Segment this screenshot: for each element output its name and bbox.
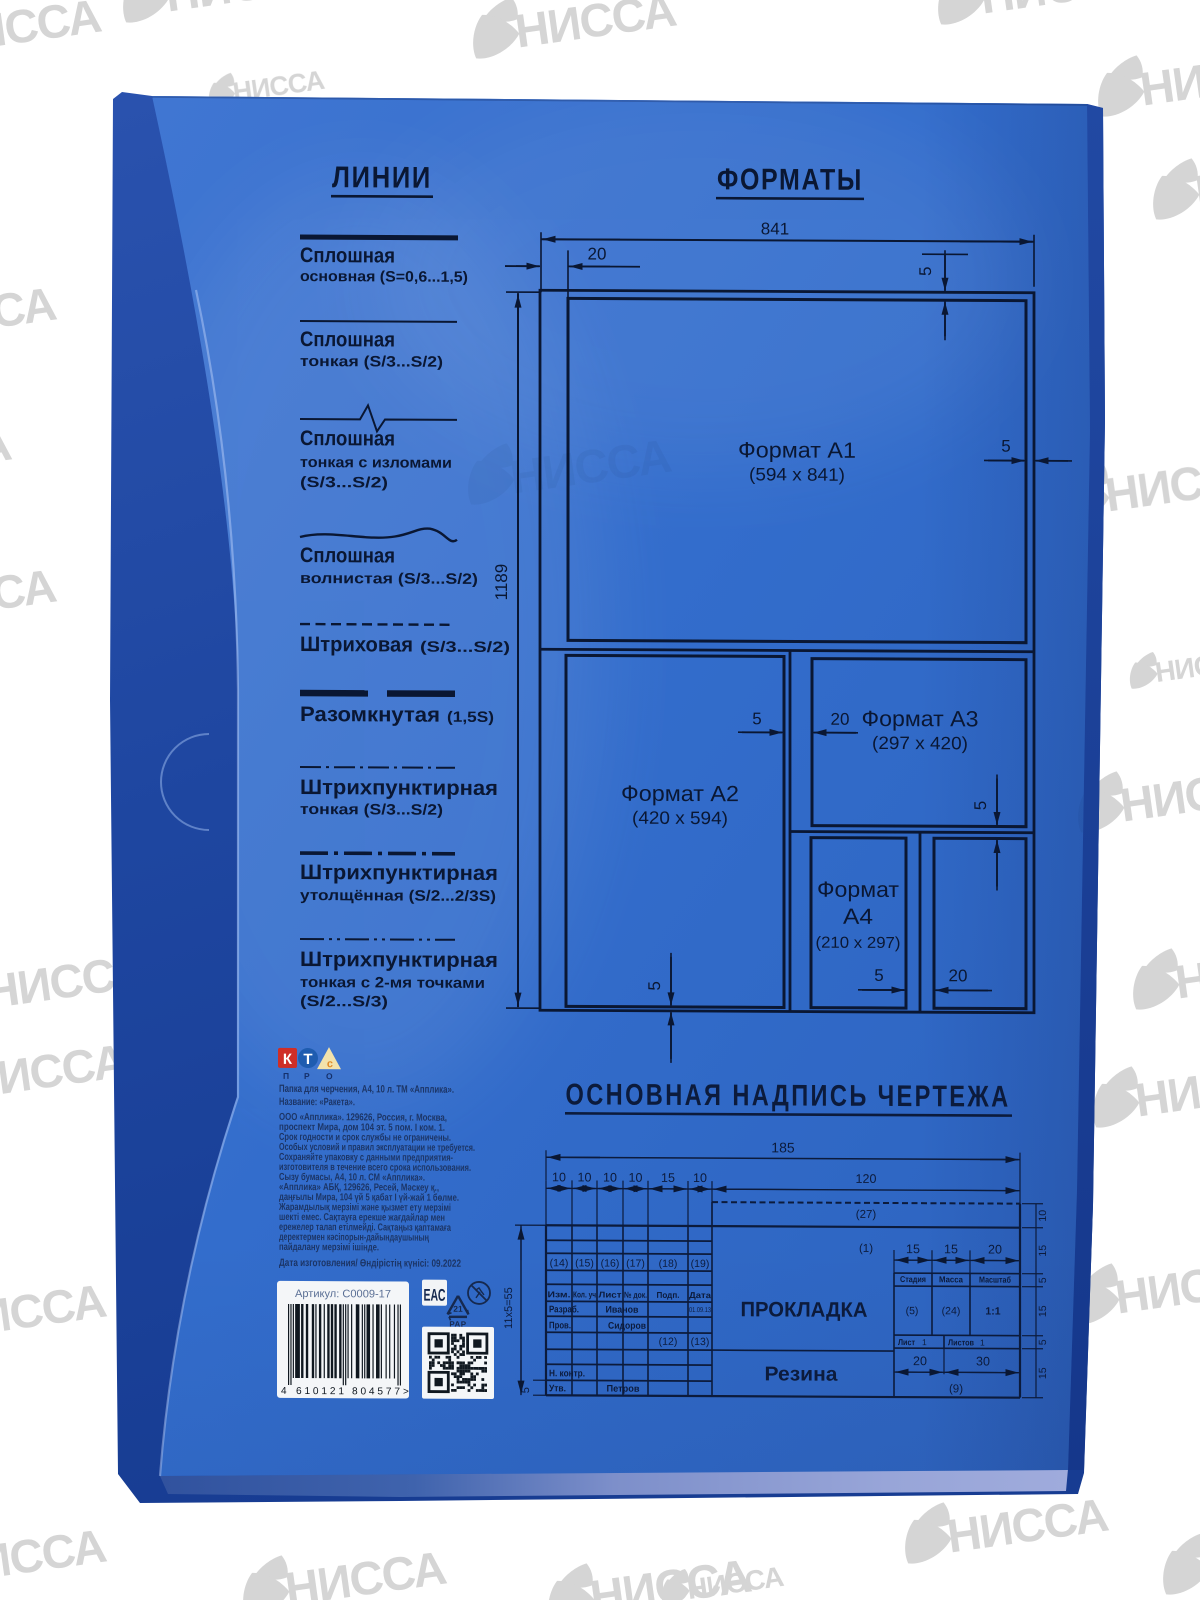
svg-text:20: 20	[913, 1354, 927, 1368]
svg-text:5: 5	[752, 709, 761, 728]
svg-text:5: 5	[971, 801, 990, 811]
svg-text:Сплошная: Сплошная	[300, 244, 395, 267]
svg-text:тонкая с 2-мя точками: тонкая с 2-мя точками	[300, 974, 485, 992]
svg-text:(13): (13)	[691, 1336, 710, 1348]
svg-text:15: 15	[1037, 1305, 1049, 1317]
svg-text:Петров: Петров	[607, 1384, 640, 1395]
svg-text:Лист: Лист	[599, 1290, 622, 1300]
svg-text:11х5=55: 11х5=55	[503, 1287, 515, 1329]
svg-text:Формат А1: Формат А1	[738, 437, 856, 463]
svg-text:6 1 0 1 2 1: 6 1 0 1 2 1	[296, 1386, 344, 1397]
svg-text:01.09.13: 01.09.13	[689, 1307, 711, 1314]
svg-text:Сплошная: Сплошная	[300, 427, 395, 450]
svg-text:(5): (5)	[906, 1305, 919, 1317]
svg-text:Дата изготовления/ Өндірістің: Дата изготовления/ Өндірістің күнісі: 09…	[279, 1257, 461, 1270]
svg-text:(9): (9)	[949, 1383, 963, 1395]
svg-text:(S/3...S/2): (S/3...S/2)	[300, 474, 388, 491]
svg-text:120: 120	[856, 1172, 877, 1186]
svg-text:20: 20	[588, 244, 607, 263]
svg-text:Сидоров: Сидоров	[608, 1321, 646, 1332]
svg-text:Подп.: Подп.	[657, 1290, 680, 1300]
svg-text:№ док.: № док.	[624, 1290, 647, 1300]
svg-text:10: 10	[552, 1170, 566, 1184]
svg-text:Артикул: С0009-17: Артикул: С0009-17	[295, 1288, 391, 1300]
svg-text:Разомкнутая: Разомкнутая	[300, 703, 440, 727]
svg-text:(594 х 841): (594 х 841)	[749, 464, 845, 484]
svg-text:1189: 1189	[492, 564, 511, 601]
svg-text:(17): (17)	[626, 1258, 645, 1270]
svg-text:ОСНОВНАЯ НАДПИСЬ ЧЕРТЕЖА: ОСНОВНАЯ НАДПИСЬ ЧЕРТЕЖА	[566, 1078, 1011, 1113]
svg-text:ЕАС: ЕАС	[424, 1286, 446, 1305]
svg-text:5: 5	[645, 981, 664, 991]
svg-text:П: П	[283, 1071, 289, 1081]
svg-text:А4: А4	[843, 904, 873, 929]
svg-text:(1,5S): (1,5S)	[447, 709, 494, 726]
svg-text:(15): (15)	[575, 1257, 594, 1269]
svg-text:20: 20	[988, 1243, 1002, 1257]
svg-text:30: 30	[976, 1354, 990, 1368]
svg-text:(14): (14)	[550, 1257, 569, 1269]
svg-text:1: 1	[922, 1337, 927, 1347]
svg-text:Сплошная: Сплошная	[300, 544, 395, 567]
svg-text:Р: Р	[304, 1071, 310, 1081]
svg-text:(210 х 297): (210 х 297)	[816, 935, 901, 952]
svg-text:Кол. уч: Кол. уч	[573, 1289, 596, 1299]
svg-text:Пров.: Пров.	[549, 1320, 571, 1331]
svg-text:К: К	[283, 1051, 293, 1068]
svg-text:основная (S=0,6...1,5): основная (S=0,6...1,5)	[300, 268, 468, 286]
svg-text:10: 10	[629, 1171, 643, 1185]
svg-text:(S/2...S/3): (S/2...S/3)	[300, 993, 388, 1010]
svg-text:(27): (27)	[856, 1209, 877, 1221]
svg-text:Сплошная: Сплошная	[300, 328, 395, 351]
svg-text:5: 5	[916, 266, 935, 276]
svg-text:(1): (1)	[859, 1243, 873, 1255]
svg-text:Штрихпунктирная: Штрихпунктирная	[300, 948, 498, 972]
svg-text:Лист: Лист	[898, 1337, 915, 1347]
svg-text:с: с	[327, 1058, 333, 1070]
svg-text:Папка для черчения, А4, 10 л.: Папка для черчения, А4, 10 л. ТМ «Апплик…	[279, 1083, 454, 1096]
svg-text:ПРОКЛАДКА: ПРОКЛАДКА	[741, 1298, 868, 1322]
svg-text:Масса: Масса	[939, 1274, 963, 1284]
svg-text:(12): (12)	[659, 1336, 678, 1348]
svg-text:Н. контр.: Н. контр.	[549, 1368, 585, 1379]
svg-text:Формат А2: Формат А2	[621, 781, 739, 807]
svg-text:Штрихпунктирная: Штрихпунктирная	[300, 861, 498, 885]
svg-text:(S/3...S/2): (S/3...S/2)	[420, 639, 510, 656]
svg-text:Утв.: Утв.	[549, 1383, 566, 1394]
svg-text:Резина: Резина	[764, 1363, 838, 1385]
svg-text:Листов: Листов	[948, 1337, 974, 1347]
svg-text:Масштаб: Масштаб	[979, 1274, 1011, 1284]
svg-text:Формат: Формат	[817, 877, 899, 902]
svg-text:10: 10	[603, 1171, 617, 1185]
svg-text:841: 841	[761, 219, 789, 238]
svg-text:тонкая (S/3...S/2): тонкая (S/3...S/2)	[300, 801, 443, 819]
svg-text:5: 5	[874, 966, 883, 985]
svg-text:20: 20	[949, 966, 968, 985]
svg-text:5: 5	[520, 1387, 532, 1393]
svg-text:15: 15	[1037, 1245, 1049, 1257]
svg-text:Штрихпунктирная: Штрихпунктирная	[300, 776, 498, 800]
svg-text:15: 15	[944, 1242, 958, 1256]
svg-text:Дата: Дата	[689, 1290, 711, 1300]
svg-text:тонкая (S/3...S/2): тонкая (S/3...S/2)	[300, 353, 443, 371]
svg-text:15: 15	[906, 1242, 920, 1256]
svg-text:Иванов: Иванов	[606, 1305, 639, 1316]
svg-text:утолщённая (S/2...2/3S): утолщённая (S/2...2/3S)	[300, 887, 496, 905]
svg-text:>: >	[403, 1387, 409, 1398]
svg-text:8 0 4 5 7 7: 8 0 4 5 7 7	[352, 1386, 400, 1397]
svg-text:Формат А3: Формат А3	[861, 706, 978, 732]
svg-text:волнистая (S/3...S/2): волнистая (S/3...S/2)	[300, 570, 478, 588]
svg-text:Штриховая: Штриховая	[300, 633, 413, 657]
svg-text:5: 5	[1037, 1339, 1049, 1345]
svg-text:1: 1	[980, 1337, 985, 1347]
svg-text:(420 х 594): (420 х 594)	[632, 808, 728, 828]
svg-text:4: 4	[281, 1386, 287, 1397]
svg-text:10: 10	[693, 1171, 707, 1185]
svg-text:5: 5	[1001, 437, 1010, 456]
svg-text:О: О	[326, 1071, 333, 1081]
svg-text:Название: «Ракета».: Название: «Ракета».	[279, 1096, 355, 1108]
svg-text:Стадия: Стадия	[900, 1274, 926, 1284]
svg-text:тонкая с изломами: тонкая с изломами	[300, 454, 452, 472]
svg-text:1:1: 1:1	[985, 1305, 1000, 1317]
svg-text:(24): (24)	[942, 1305, 961, 1317]
svg-text:(19): (19)	[691, 1258, 710, 1270]
svg-text:(16): (16)	[601, 1258, 620, 1270]
svg-text:21: 21	[453, 1304, 463, 1314]
svg-text:ФОРМАТЫ: ФОРМАТЫ	[717, 163, 863, 197]
svg-text:Разраб.: Разраб.	[549, 1304, 579, 1315]
svg-text:185: 185	[771, 1139, 795, 1155]
svg-text:5: 5	[1037, 1277, 1049, 1283]
svg-text:15: 15	[661, 1171, 675, 1185]
svg-text:15: 15	[1037, 1367, 1049, 1379]
svg-text:Изм.: Изм.	[548, 1289, 571, 1299]
svg-text:10: 10	[578, 1170, 592, 1184]
svg-text:пайдалану мерзімі ішінде.: пайдалану мерзімі ішінде.	[279, 1242, 379, 1254]
svg-text:(297 х 420): (297 х 420)	[872, 733, 968, 753]
svg-text:20: 20	[831, 710, 850, 729]
svg-text:10: 10	[1037, 1210, 1049, 1222]
svg-text:Т: Т	[303, 1051, 312, 1068]
svg-text:(18): (18)	[659, 1258, 678, 1270]
svg-text:ЛИНИИ: ЛИНИИ	[332, 161, 432, 195]
